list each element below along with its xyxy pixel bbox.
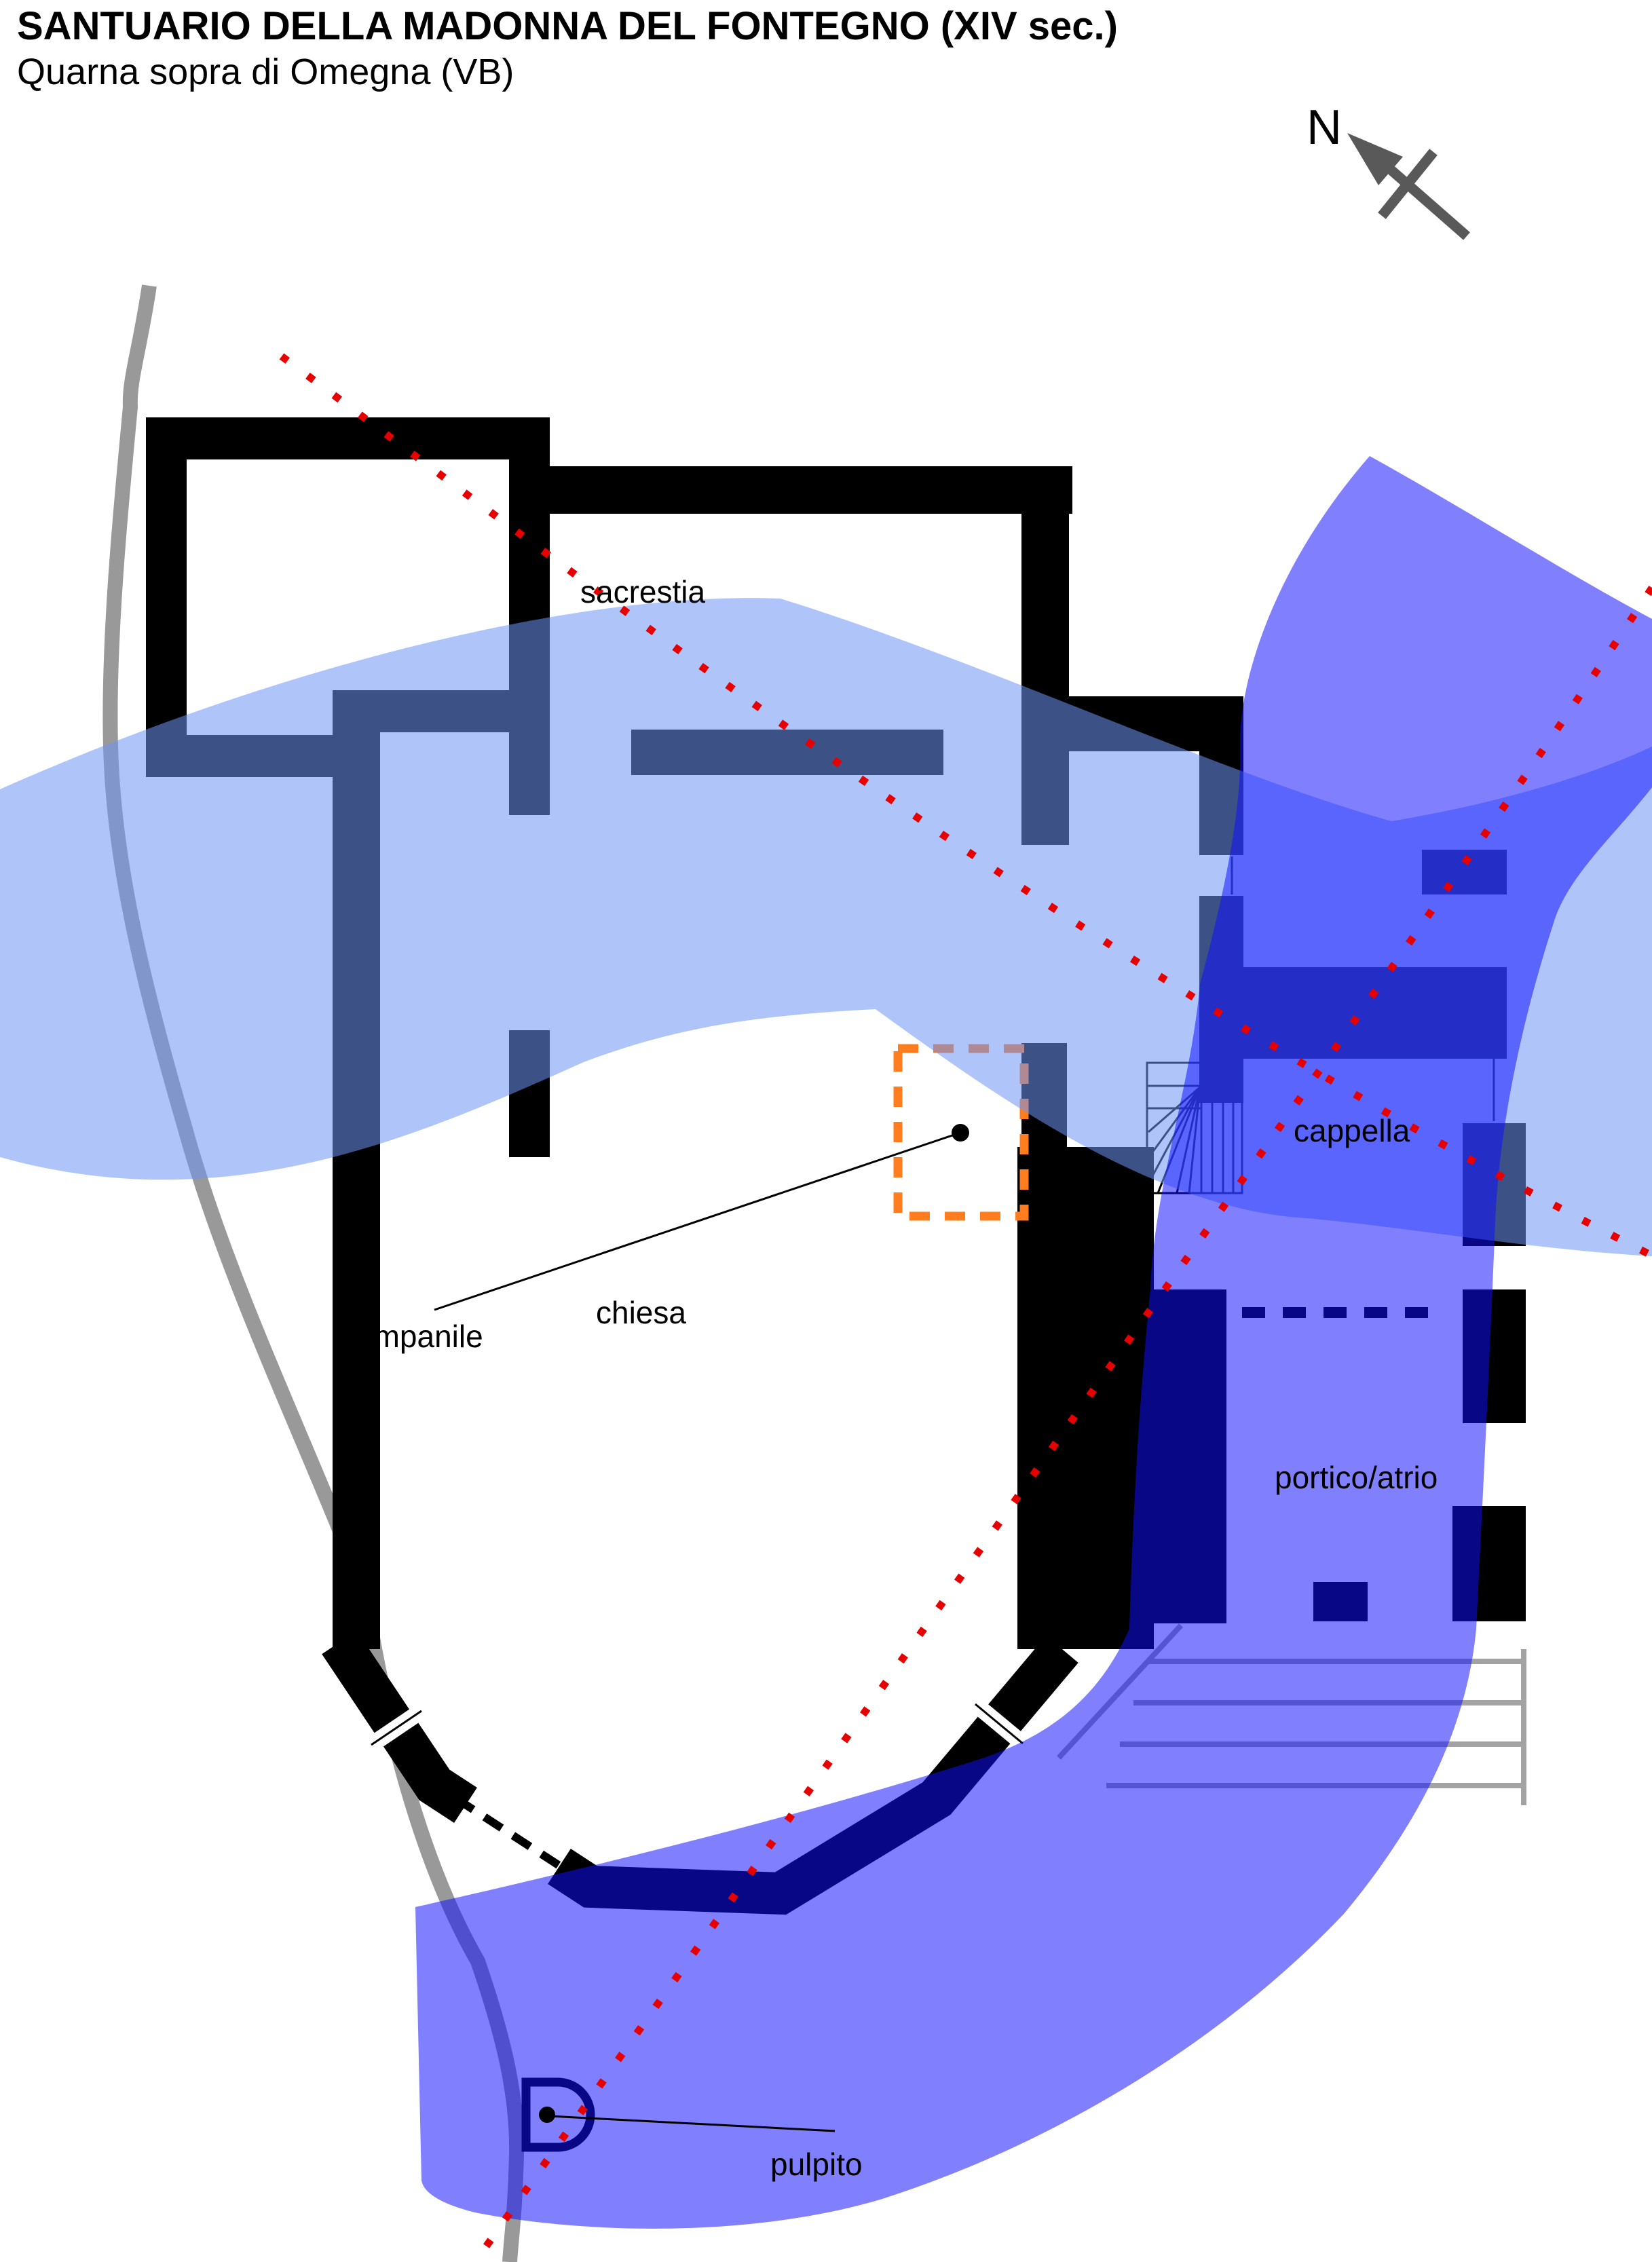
campanile-dot (952, 1124, 969, 1142)
label-cappella: cappella (1294, 1113, 1410, 1148)
page-subtitle: Quarna sopra di Omegna (VB) (17, 52, 514, 92)
page-title: SANTUARIO DELLA MADONNA DEL FONTEGNO (XI… (17, 4, 1118, 48)
pulpito-dot (539, 2107, 555, 2123)
nw-room-north-wall (146, 417, 550, 459)
compass-label: N (1307, 100, 1342, 155)
floor-plan: sacrestia cappella campanile chiesa port… (0, 0, 1652, 2262)
label-pulpito: pulpito (770, 2147, 863, 2182)
sacrestia-north-wall (550, 466, 1072, 514)
label-campanile: campanile (341, 1319, 483, 1354)
label-portico-atrio: portico/atrio (1275, 1460, 1438, 1495)
label-chiesa: chiesa (596, 1295, 686, 1330)
label-sacrestia: sacrestia (580, 574, 705, 609)
